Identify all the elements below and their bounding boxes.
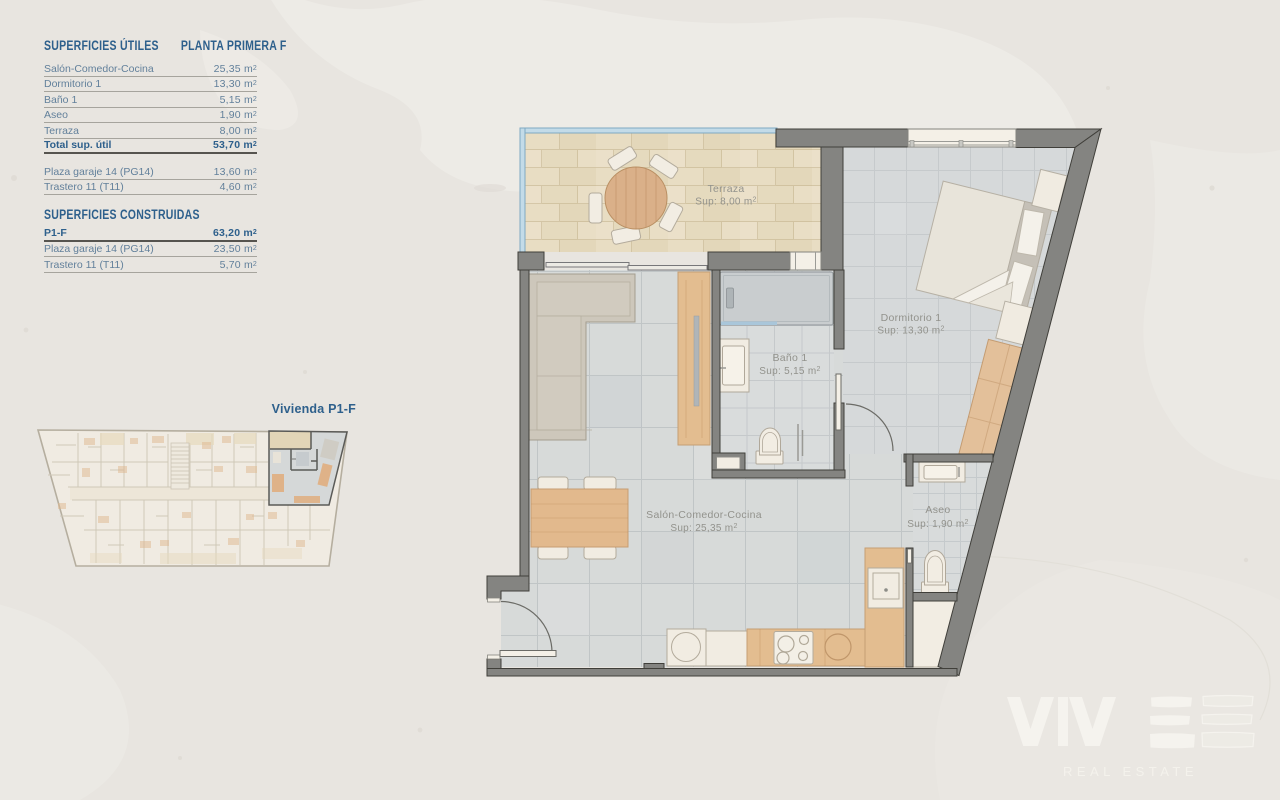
svg-text:Baño 1: Baño 1 bbox=[772, 352, 807, 364]
svg-text:Sup: 25,35 m2: Sup: 25,35 m2 bbox=[670, 523, 737, 534]
svg-text:REAL ESTATE: REAL ESTATE bbox=[1063, 764, 1198, 779]
svg-text:Salón-Comedor-Cocina: Salón-Comedor-Cocina bbox=[646, 509, 762, 521]
svg-text:Sup: 13,30 m2: Sup: 13,30 m2 bbox=[877, 326, 944, 337]
svg-text:Sup: 5,15 m2: Sup: 5,15 m2 bbox=[759, 366, 820, 377]
svg-text:Sup: 8,00 m2: Sup: 8,00 m2 bbox=[695, 197, 756, 208]
svg-text:Aseo: Aseo bbox=[925, 504, 950, 516]
svg-text:Dormitorio 1: Dormitorio 1 bbox=[881, 312, 942, 324]
svg-text:Sup: 1,90 m2: Sup: 1,90 m2 bbox=[907, 519, 968, 530]
svg-text:Terraza: Terraza bbox=[707, 183, 744, 195]
